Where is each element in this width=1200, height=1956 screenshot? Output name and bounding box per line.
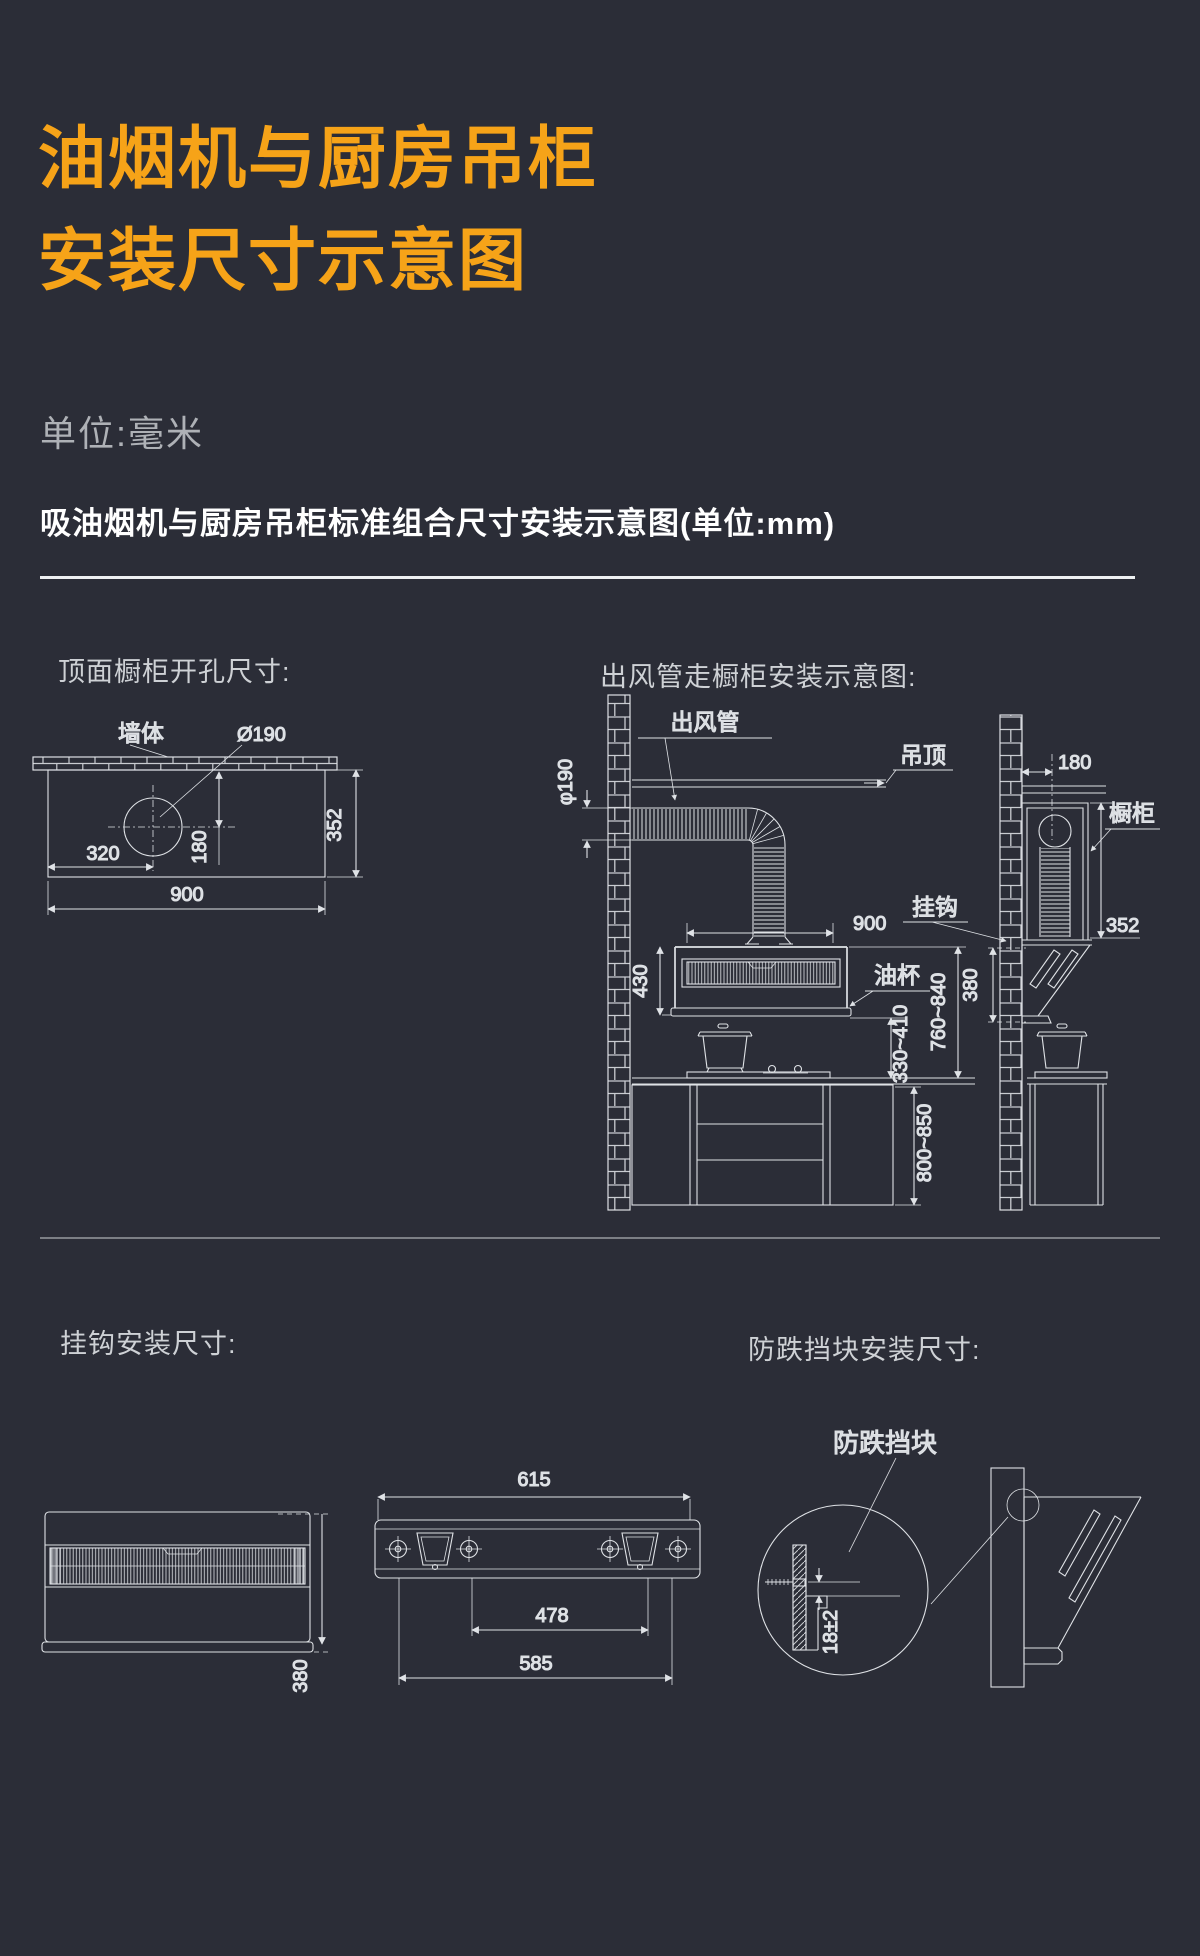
dim-hood-depth: 380: [290, 1659, 312, 1692]
dim-bar-width: 615: [517, 1469, 550, 1491]
dim-hook-height: 380: [960, 968, 982, 1001]
duct-diagram: φ190 出风管 吊顶 900: [460, 690, 1160, 1220]
oil-cup-label: 油杯: [874, 962, 920, 988]
dim-offset-x: 320: [86, 843, 119, 865]
cutout-heading: 顶面橱柜开孔尺寸:: [58, 650, 291, 689]
dim-block-gap: 18±2: [820, 1610, 842, 1654]
hood-front-view: 380: [30, 1500, 340, 1720]
dim-counter-height: 800~850: [914, 1104, 936, 1182]
page-title-line2: 安装尺寸示意图: [38, 210, 598, 312]
ceiling-label: 吊顶: [900, 742, 946, 768]
dim-depth: 352: [324, 808, 346, 841]
block-label: 防跌挡块: [833, 1428, 937, 1458]
dim-width: 900: [170, 884, 203, 906]
hook-heading: 挂钩安装尺寸:: [60, 1322, 237, 1361]
dim-cabinet-depth: 352: [1106, 915, 1139, 937]
dim-hood-width: 900: [853, 913, 886, 935]
dim-hood-to-counter: 330~410: [890, 1005, 912, 1083]
cabinet-label: 橱柜: [1109, 800, 1155, 826]
hook-label: 挂钩: [912, 894, 958, 920]
keyhole-slots: [385, 1533, 691, 1570]
installation-diagram-page: 油烟机与厨房吊柜 安装尺寸示意图 单位:毫米 吸油烟机与厨房吊柜标准组合尺寸安装…: [0, 0, 1200, 1956]
block-diagram: 防跌挡块 18±2: [720, 1400, 1180, 1730]
block-heading: 防跌挡块安装尺寸:: [748, 1328, 981, 1367]
page-title-line1: 油烟机与厨房吊柜: [38, 108, 598, 210]
dim-hood-height: 430: [630, 964, 652, 997]
dim-duct-dia: φ190: [555, 759, 577, 805]
hook-bar-view: 615 478 585: [370, 1460, 710, 1690]
dim-wall-gap: 180: [1058, 752, 1091, 774]
hole-dia-label: Ø190: [237, 724, 286, 746]
dim-hole-span: 478: [535, 1605, 568, 1627]
unit-note: 单位:毫米: [40, 405, 204, 457]
dim-offset-y: 180: [189, 830, 211, 863]
wall-label: 墙体: [118, 720, 164, 746]
divider-middle: [40, 1237, 1160, 1239]
cutout-diagram: 墙体 Ø190 320 180 352 900: [30, 705, 370, 955]
duct-label: 出风管: [671, 709, 740, 735]
dim-counter-to-hood-top: 760~840: [928, 973, 950, 1051]
duct-heading: 出风管走橱柜安装示意图:: [600, 655, 917, 694]
divider-top: [40, 576, 1135, 579]
page-title: 油烟机与厨房吊柜 安装尺寸示意图: [38, 108, 598, 312]
dim-outer-span: 585: [519, 1653, 552, 1675]
section-heading: 吸油烟机与厨房吊柜标准组合尺寸安装示意图(单位:mm): [40, 498, 835, 543]
